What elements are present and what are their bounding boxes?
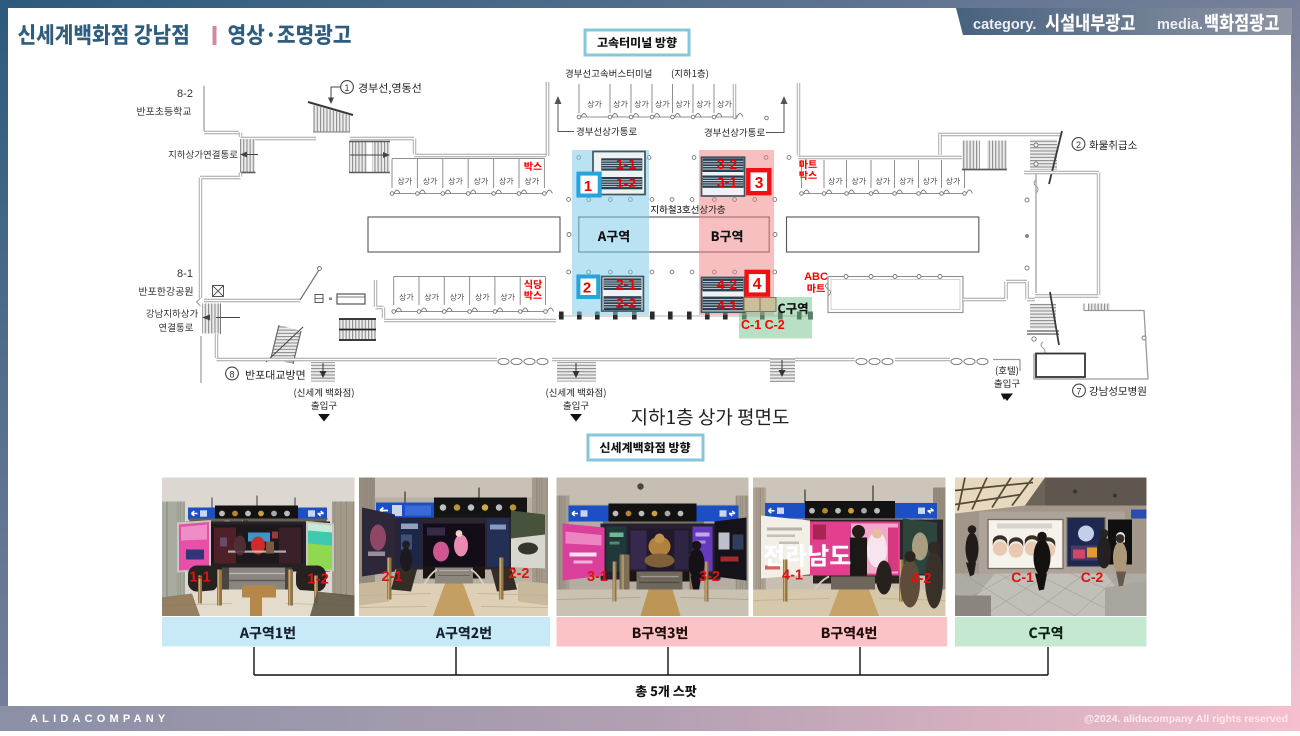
svg-text:3-2: 3-2 [717,156,737,172]
svg-text:4: 4 [753,276,762,293]
svg-text:1-2: 1-2 [616,175,636,191]
svg-text:1: 1 [344,83,349,93]
svg-text:1-1: 1-1 [189,569,211,586]
svg-text:1-2: 1-2 [307,571,329,588]
svg-text:4-2: 4-2 [717,276,737,292]
svg-text:3-1: 3-1 [717,174,737,190]
svg-text:2-2: 2-2 [509,566,530,582]
svg-text:2: 2 [583,280,591,297]
svg-text:8: 8 [229,370,234,380]
svg-text:3-1: 3-1 [587,569,608,585]
svg-text:@2024. alidacompany All rights: @2024. alidacompany All rights reserved [1084,713,1288,725]
svg-text:C-2: C-2 [1081,569,1104,585]
svg-text:3-2: 3-2 [699,569,720,585]
svg-text:C-1 C-2: C-1 C-2 [741,318,785,332]
svg-text:2-1: 2-1 [382,569,403,585]
svg-text:media.: media. [1157,17,1203,33]
svg-text:7: 7 [1076,387,1081,397]
svg-text:category.: category. [973,17,1036,33]
svg-text:ABC: ABC [804,271,828,283]
svg-text:8-1: 8-1 [177,268,193,280]
svg-text:2: 2 [1076,140,1081,150]
svg-text:C-1: C-1 [1011,569,1034,585]
svg-text:2-2: 2-2 [616,295,636,311]
svg-text:2-1: 2-1 [616,276,636,292]
svg-text:3: 3 [755,175,764,192]
svg-text:4-1: 4-1 [782,568,803,584]
svg-text:4-2: 4-2 [911,571,932,587]
svg-text:4-1: 4-1 [717,297,737,313]
svg-text:ALIDACOMPANY: ALIDACOMPANY [30,713,169,725]
svg-text:8-2: 8-2 [177,88,193,100]
svg-text:1: 1 [584,178,592,195]
svg-text:1-1: 1-1 [616,156,636,172]
